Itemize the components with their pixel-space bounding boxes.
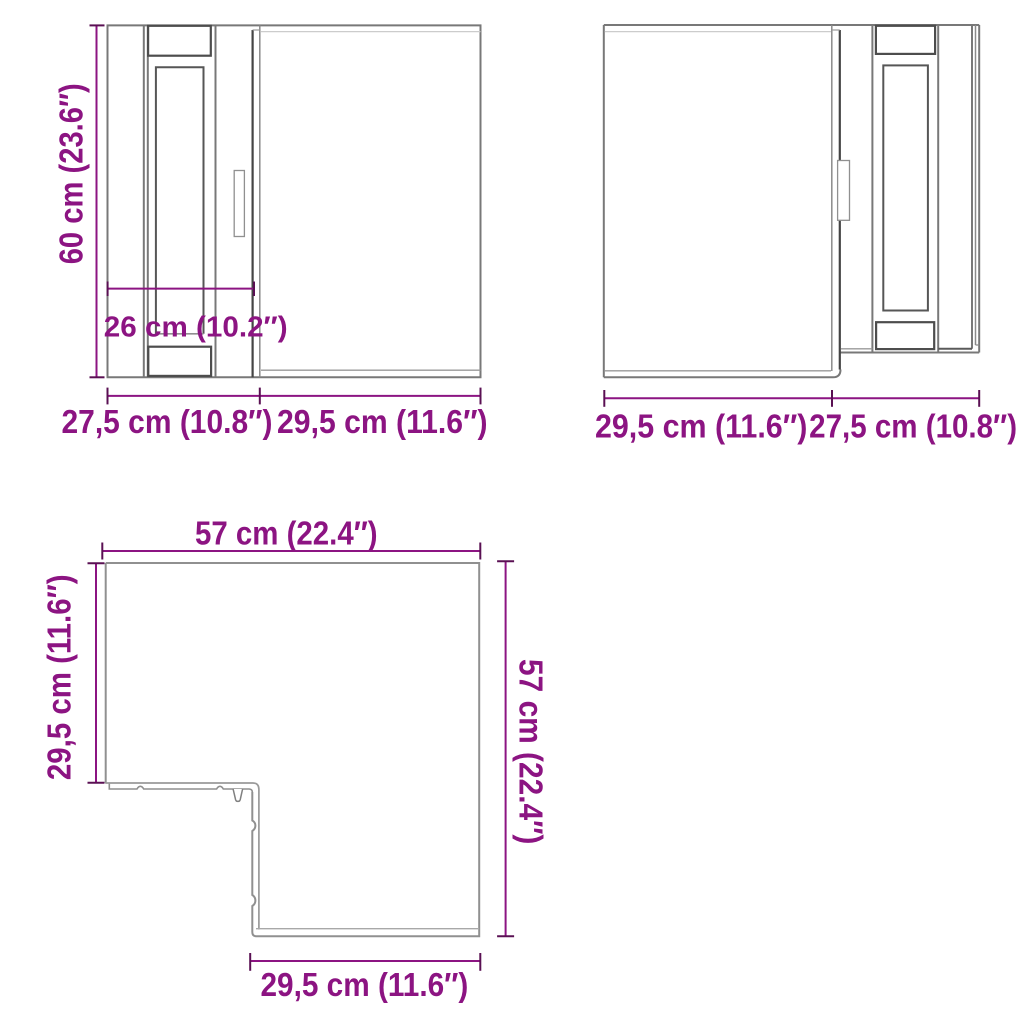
svg-text:26 cm (10.2″): 26 cm (10.2″) — [104, 311, 288, 343]
svg-text:29,5 cm (11.6″): 29,5 cm (11.6″) — [40, 575, 77, 781]
svg-text:57 cm (22.4″): 57 cm (22.4″) — [513, 659, 550, 844]
svg-text:60 cm (23.6″): 60 cm (23.6″) — [53, 83, 90, 264]
svg-text:27,5 cm (10.8″): 27,5 cm (10.8″) — [809, 408, 1017, 445]
svg-text:29,5 cm (11.6″): 29,5 cm (11.6″) — [277, 403, 488, 440]
svg-text:29,5 cm (11.6″): 29,5 cm (11.6″) — [261, 966, 469, 1003]
svg-text:29,5 cm (11.6″): 29,5 cm (11.6″) — [595, 408, 808, 445]
svg-text:27,5 cm (10.8″): 27,5 cm (10.8″) — [62, 403, 273, 440]
svg-text:57 cm (22.4″): 57 cm (22.4″) — [195, 515, 378, 552]
